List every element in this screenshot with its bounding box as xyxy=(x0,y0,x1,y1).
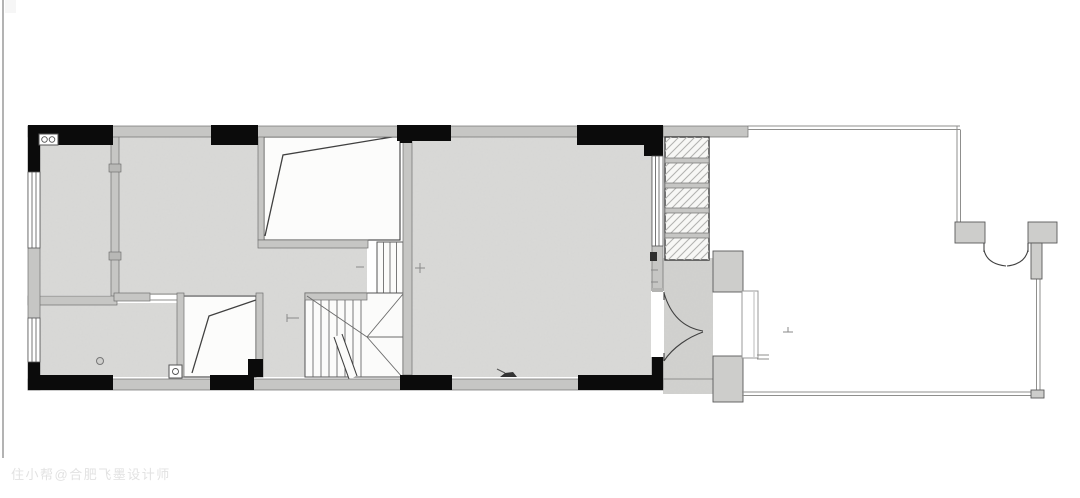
shelf-divider xyxy=(665,183,709,188)
screenshot-edge-artifact xyxy=(3,0,16,458)
shelf-divider xyxy=(665,158,709,163)
gate-door-swings xyxy=(984,243,1028,266)
gate-post-left xyxy=(955,222,985,243)
main-room-floor xyxy=(412,137,652,377)
shelf-divider xyxy=(665,208,709,213)
level-mark-courtyard xyxy=(783,327,793,332)
watermark-text: 住小帮@合肥飞墨设计师 xyxy=(11,467,171,482)
room-floor-middle xyxy=(118,137,263,295)
window-left-lower xyxy=(28,318,40,362)
hall-floor-by-stairs xyxy=(305,248,367,293)
void-bottom xyxy=(183,296,256,377)
courtyard-walls xyxy=(742,126,1044,398)
entry-door-opening xyxy=(651,291,664,357)
courtyard xyxy=(742,126,1057,398)
porch-pier-top xyxy=(713,251,743,292)
main-room-left-wall xyxy=(403,135,412,375)
gate-post-stem xyxy=(1031,243,1042,279)
void-left-wall xyxy=(258,135,264,240)
porch-fence xyxy=(742,291,769,359)
window-right xyxy=(652,156,663,246)
double-socket-symbol xyxy=(39,134,58,145)
floor-plan-screenshot: 住小帮@合肥飞墨设计师 xyxy=(0,0,1080,498)
hall-floor xyxy=(258,248,305,377)
edge-corner-patch xyxy=(5,0,16,13)
wall-jamb xyxy=(109,252,121,260)
entry-jamb xyxy=(652,288,663,292)
gate-post-right xyxy=(1028,222,1057,243)
floor-drain-square xyxy=(169,365,182,378)
void2-left-wall xyxy=(177,293,184,377)
partition-wall-horizontal xyxy=(28,296,117,305)
bottom-wall-band xyxy=(28,379,663,390)
gate xyxy=(955,222,1057,279)
shelf-divider xyxy=(665,233,709,238)
stair-lower-run xyxy=(305,293,403,377)
partition-wall-vertical xyxy=(111,135,119,297)
partition-wall-horizontal-2 xyxy=(114,293,150,301)
window-left-upper xyxy=(28,172,40,248)
room-floor-bottom-left xyxy=(40,303,177,377)
void-top xyxy=(264,136,400,240)
stair-parapet-wall xyxy=(258,240,368,248)
stair-edge-wall xyxy=(305,293,367,300)
floor-plan-canvas: 住小帮@合肥飞墨设计师 xyxy=(0,0,1080,498)
void-top-area xyxy=(264,137,400,240)
cabinet-end-block xyxy=(650,252,657,261)
floor-drain-round xyxy=(97,358,104,365)
room-floor-top-left xyxy=(40,137,112,295)
porch-pier-bottom xyxy=(713,356,743,402)
gate-arc-left xyxy=(984,250,1006,266)
wall-corner-block xyxy=(1031,390,1044,398)
wall-jamb xyxy=(109,164,121,172)
gate-arc-right xyxy=(1007,250,1028,266)
